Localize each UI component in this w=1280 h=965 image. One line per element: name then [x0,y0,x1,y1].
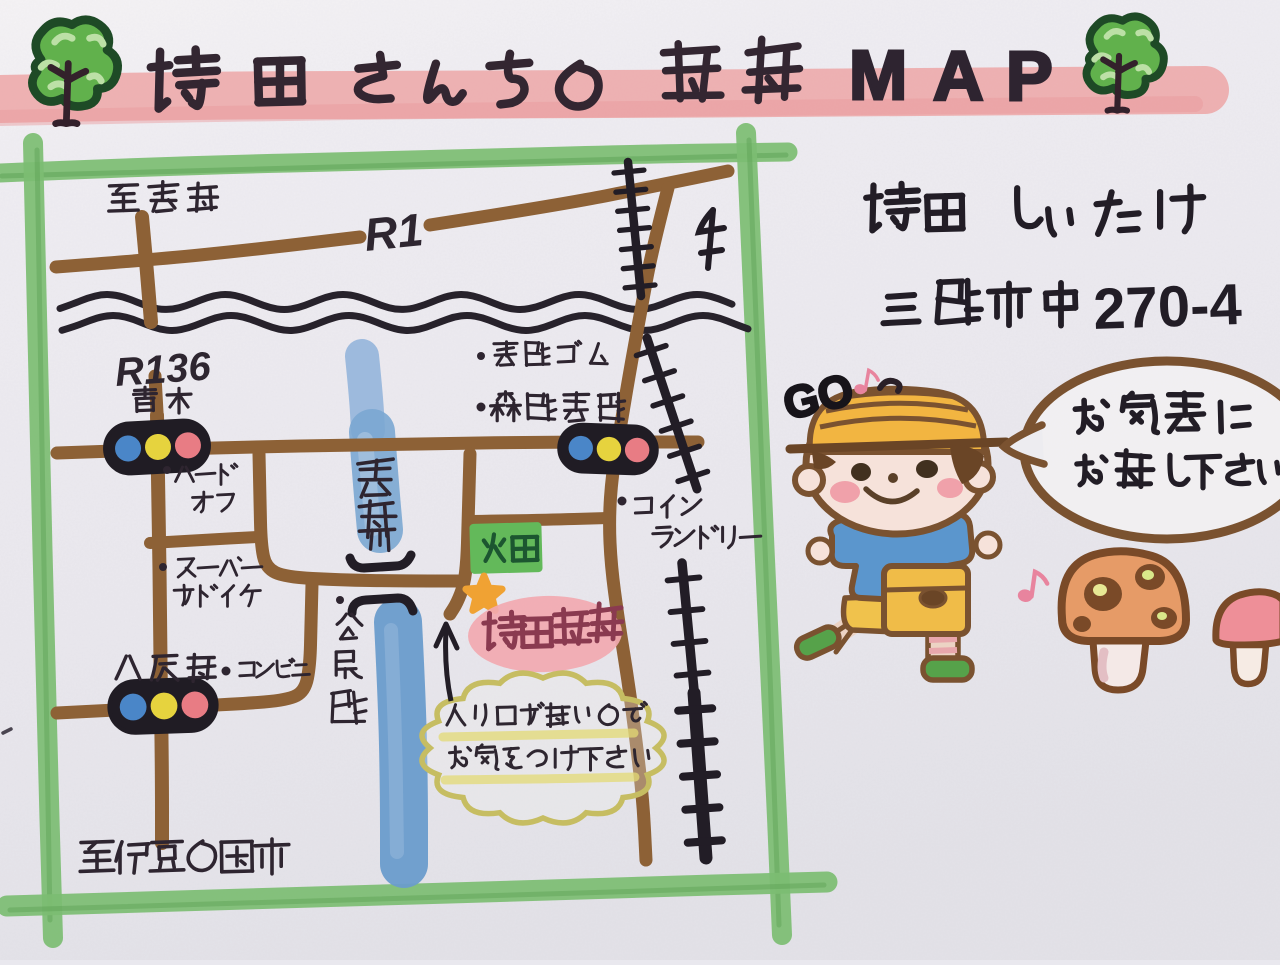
svg-text:R136: R136 [114,344,213,395]
svg-text:M: M [849,36,907,114]
svg-text:270-4: 270-4 [1092,272,1243,342]
svg-text:R1: R1 [362,203,426,261]
svg-text:A: A [933,37,984,115]
svg-text:P: P [1006,37,1053,115]
